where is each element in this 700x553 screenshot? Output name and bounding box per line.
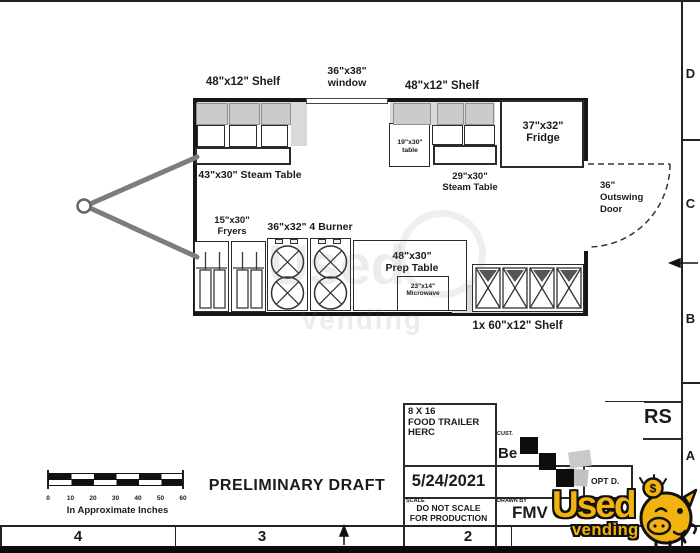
- left-shelf-cell: [196, 103, 228, 125]
- label-fridge: 37"x32" Fridge: [504, 120, 582, 145]
- label-bottom-shelf: 1x 60"x12" Shelf: [460, 320, 575, 333]
- scale-note: DO NOT SCALE FOR PRODUCTION: [404, 503, 493, 523]
- steam-table-right-pan: [464, 125, 495, 145]
- scale-note-line2: FOR PRODUCTION: [404, 513, 493, 523]
- redaction-whiteout: [497, 402, 644, 433]
- project-title: 8 X 16 FOOD TRAILER HERC: [408, 407, 479, 439]
- bottom-shelf-box: [472, 264, 584, 312]
- partial-heading-text: RS: [644, 406, 672, 429]
- label-shelf-right: 48"x12" Shelf: [392, 80, 492, 93]
- label-steam-right-word: Steam Table: [427, 183, 513, 194]
- border-tick: [681, 382, 700, 384]
- right-border-line: [681, 0, 683, 546]
- label-prep-size: 48"x30": [372, 251, 452, 263]
- drawn-by-value: FMV: [512, 503, 548, 523]
- label-fryers-word: Fryers: [203, 227, 261, 238]
- burner-knob: [275, 239, 283, 244]
- label-small-table-word: table: [390, 147, 430, 155]
- label-prep-table: 48"x30" Prep Table: [372, 251, 452, 275]
- redaction-square: [539, 453, 556, 470]
- svg-text:$: $: [650, 482, 657, 496]
- customer-label: CUST.: [497, 431, 513, 437]
- scale-tick: 50: [155, 495, 167, 502]
- label-prep-word: Prep Table: [372, 263, 452, 275]
- label-fridge-word: Fridge: [504, 132, 582, 144]
- label-microwave: 23"x14" Microwave: [399, 283, 447, 298]
- zone-letter-d: D: [682, 66, 699, 81]
- date-value: 5/24/2021: [404, 472, 493, 491]
- steam-table-left-pan: [197, 125, 225, 147]
- redaction-square: [520, 437, 538, 454]
- burner-box: [310, 238, 351, 311]
- steam-table-left-pan: [261, 125, 288, 147]
- steam-table-left-tray: [195, 147, 291, 165]
- scale-note-line1: DO NOT SCALE: [404, 503, 493, 513]
- serving-window: [306, 98, 388, 104]
- fryer-box: [194, 241, 229, 312]
- burner-box: [267, 238, 308, 311]
- project-line3: HERC: [408, 428, 479, 439]
- label-window-size: 36"x38": [307, 66, 387, 78]
- border-tick: [175, 525, 177, 546]
- zone-number-4: 4: [58, 528, 98, 545]
- zone-number-2: 2: [448, 528, 488, 545]
- scale-tick: 10: [65, 495, 77, 502]
- titleblock-line: [643, 438, 682, 440]
- label-door: 36" Outswing Door: [600, 180, 656, 216]
- preliminary-draft-text: PRELIMINARY DRAFT: [200, 477, 394, 495]
- scale-tick: 30: [110, 495, 122, 502]
- label-shelf-left: 48"x12" Shelf: [193, 76, 293, 89]
- scale-tick: 20: [87, 495, 99, 502]
- label-small-table-size: 19"x30": [390, 139, 430, 147]
- label-door-line2: Outswing: [600, 192, 656, 204]
- left-shelf-cell: [229, 103, 260, 125]
- right-shelf-cell: [393, 103, 431, 125]
- customer-value: Be: [498, 445, 517, 462]
- titleblock-line: [403, 403, 497, 405]
- sheet-top-edge: [0, 0, 700, 2]
- zone-number-3: 3: [242, 528, 282, 545]
- logo-word-used: Used: [552, 484, 634, 526]
- steam-table-right-tray: [433, 145, 497, 165]
- label-fryers: 15"x30" Fryers: [203, 216, 261, 237]
- label-microwave-size: 23"x14": [399, 283, 447, 290]
- label-steam-right: 29"x30" Steam Table: [427, 172, 513, 193]
- label-microwave-word: Microwave: [399, 290, 447, 297]
- titleblock-line: [403, 465, 632, 467]
- border-tick: [681, 139, 700, 141]
- border-tick: [0, 525, 2, 546]
- left-shelf-cell: [261, 103, 291, 125]
- zone-letter-b: B: [682, 311, 699, 326]
- scale-tick: 60: [177, 495, 189, 502]
- blueprint-sheet: Used Vending 48"x12" Shelf 36"x38" windo…: [0, 0, 700, 553]
- burner-knob: [318, 239, 326, 244]
- left-shelf-corner: [291, 102, 307, 146]
- right-shelf-cell: [465, 103, 494, 125]
- scale-bar-row: [48, 479, 183, 486]
- hitch-coupler: [78, 200, 91, 213]
- steam-table-right-pan: [432, 125, 463, 145]
- label-steam-left: 43"x30" Steam Table: [194, 170, 306, 182]
- steam-table-left-pan: [229, 125, 257, 147]
- label-small-table: 19"x30" table: [390, 139, 430, 154]
- scale-tick: 40: [132, 495, 144, 502]
- label-window-word: window: [307, 78, 387, 90]
- label-window: 36"x38" window: [307, 66, 387, 90]
- zone-letter-c: C: [682, 196, 699, 211]
- door-wall-gap: [583, 161, 594, 251]
- border-tick: [511, 525, 513, 546]
- label-fridge-size: 37"x32": [504, 120, 582, 132]
- label-burner: 36"x32" 4 Burner: [258, 222, 362, 234]
- gray-smudge: [568, 450, 592, 469]
- burner-knob: [290, 239, 298, 244]
- right-shelf-cell: [437, 103, 464, 125]
- scale-bar-caption: In Approximate Inches: [55, 506, 180, 517]
- pig-mascot-icon: $: [626, 474, 700, 552]
- fryer-box: [231, 241, 266, 312]
- usedvending-logo: Used vending $: [548, 480, 700, 550]
- zone-letter-a: A: [682, 448, 699, 463]
- label-door-line3: Door: [600, 204, 656, 216]
- trailer-hitch: [90, 157, 197, 257]
- scale-tick: 0: [42, 495, 54, 502]
- burner-knob: [333, 239, 341, 244]
- label-door-size: 36": [600, 180, 656, 192]
